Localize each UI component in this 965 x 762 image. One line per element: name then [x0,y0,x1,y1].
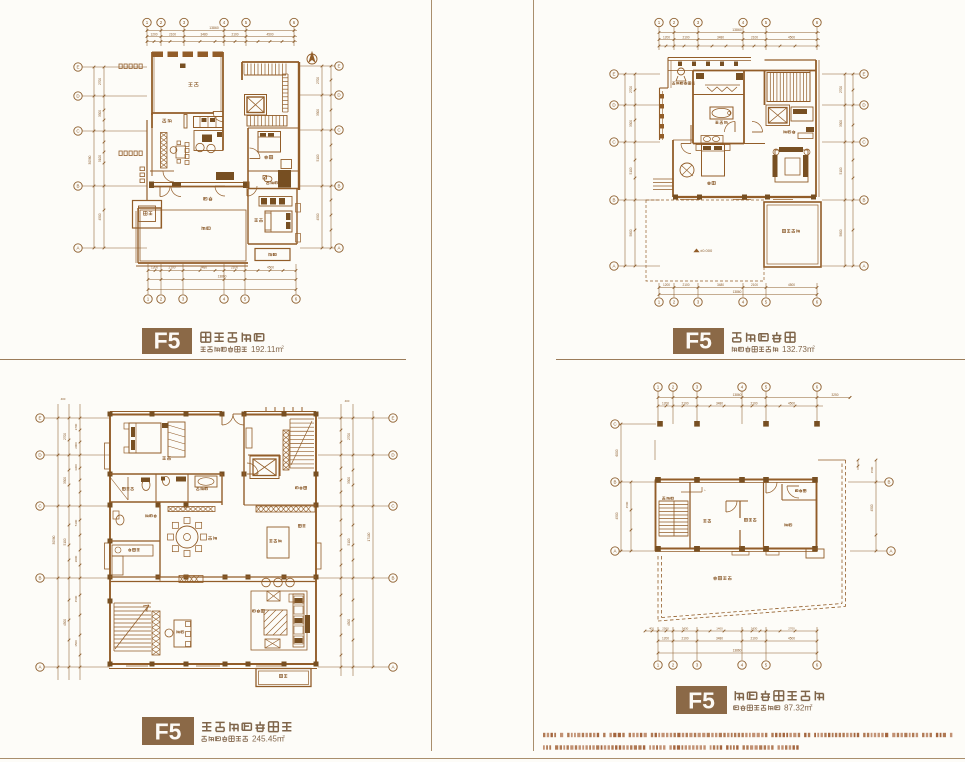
svg-text:B: B [613,480,616,485]
svg-text:192.11m: 192.11m [251,345,282,354]
svg-text:C: C [38,504,42,509]
svg-text:6: 6 [816,300,819,305]
svg-text:2100: 2100 [750,402,757,406]
svg-text:E: E [337,64,340,69]
svg-text:3430: 3430 [682,627,689,631]
svg-text:30580: 30580 [88,155,92,164]
svg-text:±0.000: ±0.000 [700,248,713,253]
svg-text:5100: 5100 [63,538,67,545]
svg-text:3: 3 [697,20,700,25]
svg-text:6: 6 [816,663,819,668]
svg-text:C: C [862,140,866,145]
svg-text:1200: 1200 [663,283,670,287]
svg-text:400: 400 [649,627,654,631]
svg-text:30580: 30580 [52,535,56,544]
svg-text:2700: 2700 [63,433,67,440]
svg-text:5: 5 [765,385,768,390]
svg-text:4: 4 [741,663,744,668]
svg-text:4: 4 [223,297,226,302]
svg-text:C: C [391,504,395,509]
svg-text:4500: 4500 [788,637,795,641]
svg-text:3480: 3480 [200,32,207,36]
svg-text:2: 2 [160,20,163,25]
svg-text:4500: 4500 [788,283,795,287]
svg-text:6: 6 [295,297,298,302]
svg-text:2: 2 [672,663,675,668]
svg-text:2500: 2500 [662,627,669,631]
svg-text:5100: 5100 [347,538,351,545]
svg-text:6000: 6000 [615,449,619,456]
svg-text:D: D [38,453,42,458]
svg-text:1: 1 [658,300,661,305]
svg-text:2100: 2100 [682,283,689,287]
svg-text:5: 5 [245,20,248,25]
svg-text:2100: 2100 [750,637,757,641]
svg-text:3300: 3300 [629,120,633,127]
svg-text:87.32m: 87.32m [784,704,811,713]
svg-text:B: B [887,480,890,485]
svg-text:E: E [76,65,79,70]
svg-text:B: B [76,184,79,189]
svg-text:4500: 4500 [267,266,274,270]
svg-text:3: 3 [182,297,185,302]
svg-text:E: E [612,72,615,77]
svg-text:4500: 4500 [98,213,102,220]
svg-text:D: D [76,94,80,99]
svg-text:D: D [337,93,341,98]
svg-text:2700: 2700 [629,86,633,93]
svg-text:A: A [391,665,394,670]
svg-text:5: 5 [765,663,768,668]
svg-text:4500: 4500 [316,213,320,220]
svg-text:3300: 3300 [316,109,320,116]
svg-text:4500: 4500 [625,501,629,508]
svg-text:13860: 13860 [733,648,742,652]
svg-text:F5: F5 [155,719,182,745]
svg-text:4500: 4500 [63,619,67,626]
svg-text:1: 1 [657,385,660,390]
svg-text:2000: 2000 [74,442,78,449]
svg-text:3300: 3300 [74,464,78,471]
svg-text:2000: 2000 [74,555,78,562]
svg-text:1500: 1500 [74,640,78,647]
svg-text:1: 1 [147,297,150,302]
svg-text:2: 2 [812,345,815,350]
svg-text:5100: 5100 [629,167,633,174]
svg-text:4500: 4500 [788,402,795,406]
svg-text:A: A [612,264,615,269]
svg-text:2700: 2700 [74,423,78,430]
svg-text:4500: 4500 [870,504,874,511]
svg-text:5: 5 [765,20,768,25]
svg-text:5100: 5100 [316,154,320,161]
svg-text:C: C [337,128,341,133]
svg-text:4500: 4500 [615,512,619,519]
svg-text:1500: 1500 [870,466,874,473]
svg-text:B: B [38,576,41,581]
svg-text:245.45m: 245.45m [252,735,284,744]
svg-text:2: 2 [160,297,163,302]
svg-text:1: 1 [657,663,660,668]
svg-text:A: A [613,549,616,554]
svg-text:A: A [38,665,41,670]
svg-text:2: 2 [281,345,284,350]
svg-text:B: B [612,198,615,203]
svg-text:2100: 2100 [751,35,758,39]
svg-text:4500: 4500 [74,595,78,602]
svg-text:13860: 13860 [218,275,227,279]
svg-text:4500: 4500 [266,32,273,36]
svg-text:400: 400 [345,399,350,403]
svg-text:3: 3 [697,300,700,305]
svg-text:1400: 1400 [716,627,723,631]
svg-text:1: 1 [146,20,149,25]
svg-text:4: 4 [223,20,226,25]
svg-text:2: 2 [673,300,676,305]
svg-text:3250: 3250 [831,393,838,397]
svg-text:2700: 2700 [839,86,843,93]
svg-text:F5: F5 [688,688,715,714]
svg-text:2430: 2430 [751,627,758,631]
svg-text:D: D [612,103,616,108]
svg-text:2100: 2100 [681,637,688,641]
svg-text:5800: 5800 [629,229,633,236]
svg-text:13860: 13860 [733,393,742,397]
svg-text:5100: 5100 [839,167,843,174]
svg-text:C: C [76,129,80,134]
svg-text:2700: 2700 [98,78,102,85]
svg-text:2700: 2700 [347,433,351,440]
svg-text:6: 6 [816,385,819,390]
svg-text:2100: 2100 [231,32,238,36]
svg-text:2: 2 [673,20,676,25]
svg-text:A: A [889,549,892,554]
svg-text:1200: 1200 [662,402,669,406]
svg-text:C: C [613,422,617,427]
svg-text:D: D [391,453,395,458]
svg-text:2100: 2100 [751,283,758,287]
svg-text:1200: 1200 [150,32,157,36]
svg-text:13860: 13860 [733,290,742,294]
svg-text:6: 6 [293,20,296,25]
svg-text:4: 4 [741,385,744,390]
svg-text:B: B [337,184,340,189]
svg-text:3480: 3480 [716,402,723,406]
svg-text:E: E [862,72,865,77]
svg-text:2: 2 [810,703,813,708]
svg-text:4500: 4500 [347,619,351,626]
svg-text:2: 2 [672,385,675,390]
svg-text:3300: 3300 [347,477,351,484]
svg-text:5: 5 [765,300,768,305]
svg-text:13860: 13860 [732,28,742,32]
svg-text:3: 3 [696,663,699,668]
svg-text:6: 6 [816,20,819,25]
svg-text:13860: 13860 [209,26,219,30]
svg-text:2700: 2700 [316,77,320,84]
svg-text:3480: 3480 [717,35,724,39]
svg-text:F5: F5 [154,328,181,354]
svg-text:5100: 5100 [98,155,102,162]
svg-text:3480: 3480 [717,283,724,287]
svg-text:^: ^ [704,489,706,493]
svg-text:4: 4 [742,20,745,25]
svg-text:A: A [862,264,865,269]
svg-text:C: C [612,140,616,145]
svg-text:2100: 2100 [682,35,689,39]
svg-text:5800: 5800 [839,229,843,236]
svg-text:5100: 5100 [74,519,78,526]
svg-text:17100: 17100 [367,532,371,541]
svg-text:F5: F5 [685,328,712,354]
svg-text:2100: 2100 [681,402,688,406]
svg-text:3300: 3300 [839,120,843,127]
svg-text:3: 3 [183,20,186,25]
svg-text:A: A [337,246,340,251]
svg-text:2: 2 [282,734,285,739]
svg-text:E: E [391,416,394,421]
svg-text:3480: 3480 [716,637,723,641]
svg-text:E: E [38,416,41,421]
svg-text:A: A [76,246,79,251]
svg-text:4500: 4500 [788,35,795,39]
svg-text:2100: 2100 [169,32,176,36]
svg-text:3300: 3300 [98,110,102,117]
svg-text:B: B [862,198,865,203]
svg-text:3300: 3300 [63,477,67,484]
svg-text:1200: 1200 [662,637,669,641]
svg-text:B: B [391,576,394,581]
svg-text:1200: 1200 [663,35,670,39]
svg-text:132.73m: 132.73m [782,345,814,354]
svg-text:D: D [862,103,866,108]
svg-text:5: 5 [244,297,247,302]
svg-text:400: 400 [61,397,66,401]
svg-text:3: 3 [696,385,699,390]
svg-text:1: 1 [658,20,661,25]
svg-text:4: 4 [742,300,745,305]
svg-text:2700: 2700 [788,627,795,631]
